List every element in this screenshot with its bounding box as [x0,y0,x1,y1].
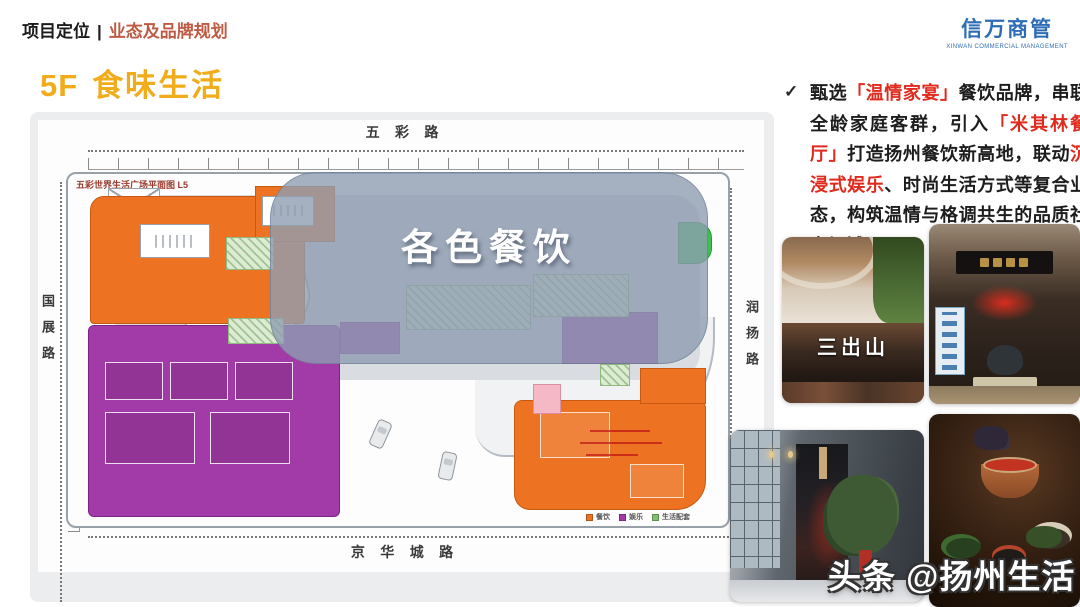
annotation-mark [586,454,638,456]
storefront-sign-text: 三岀山 [782,331,924,360]
breadcrumb-section: 项目定位 [22,22,90,41]
survey-dots-left [60,182,62,602]
overlay-label: 各色餐饮 [271,217,707,271]
annotation-mark [580,442,662,444]
zone-detail-box [540,412,610,458]
floor-theme-label: 食味生活 [92,68,224,103]
zone-detail-box [210,412,290,464]
page-title: 5F食味生活 [40,60,224,105]
zone-detail-box [630,464,684,498]
hanging-banner-shape [819,447,827,479]
photo-mall-interior-storefront: 三岀山 [782,237,924,403]
plan-legend: 餐饮娱乐生活配套 [586,512,690,522]
checkmark-icon: ✓ [784,82,798,102]
road-label-left: 国展路 [38,294,57,372]
urn-shape [987,345,1023,375]
road-label-top: 五彩路 [30,122,774,142]
mall-interior-scene [782,237,924,323]
breadcrumb-subsection: 业态及品牌规划 [109,22,228,41]
gold-plaque-shape [956,251,1053,274]
floor-label: 5F [40,68,78,103]
legend-item: 生活配套 [652,512,690,522]
annotation-mark [590,430,650,432]
road-label-bottom: 京华城路 [30,542,774,562]
watermark-text: 头条 @扬州生活网 [828,550,1080,607]
zone-lifestyle-a [226,237,274,270]
slide: 项目定位|业态及品牌规划 信万商管 XINWAN COMMERCIAL MANA… [0,0,1080,607]
logo-name: 信万商管 [946,13,1068,43]
ceiling-arch-shape [782,237,879,289]
storefront-shelf-shape [782,382,924,403]
red-neon-glow [971,285,1037,321]
floor-plan-panel: 五彩路 国展路 润扬路 京华城路 五彩世界生活广场平面图 L5 [30,112,774,602]
elevator-core-box [140,224,210,258]
zone-lifestyle-small [600,364,630,386]
zone-detail-box [235,362,293,400]
breadcrumb: 项目定位|业态及品牌规划 [22,17,228,42]
zone-detail-box [105,412,195,464]
survey-ticks-top [88,158,744,170]
zone-detail-box [105,362,163,400]
dining-highlight-overlay: 各色餐饮 [270,172,708,364]
tree-shape [827,475,897,554]
blue-menu-sign [935,307,965,375]
survey-dots-bottom [88,536,744,538]
vegetable-plate-shape [1026,526,1062,548]
company-logo: 信万商管 XINWAN COMMERCIAL MANAGEMENT [946,13,1068,50]
wall-lamp [769,451,774,458]
zone-detail-box [170,362,228,400]
survey-dots-top [88,150,744,152]
storefront-scene: 三岀山 [782,323,924,403]
wall-lamp [788,451,793,458]
zone-pink-small [533,384,561,414]
logo-tagline: XINWAN COMMERCIAL MANAGEMENT [946,44,1068,50]
plant-wall-shape [873,237,924,323]
breadcrumb-divider: | [97,22,102,41]
grapes-shape [974,426,1008,450]
floor-shape [929,386,1080,404]
road-label-right: 润扬路 [742,300,761,378]
legend-item: 餐饮 [586,512,610,522]
legend-item: 娱乐 [619,512,643,522]
zone-dining-right [640,368,706,404]
photo-traditional-restaurant [929,224,1080,404]
